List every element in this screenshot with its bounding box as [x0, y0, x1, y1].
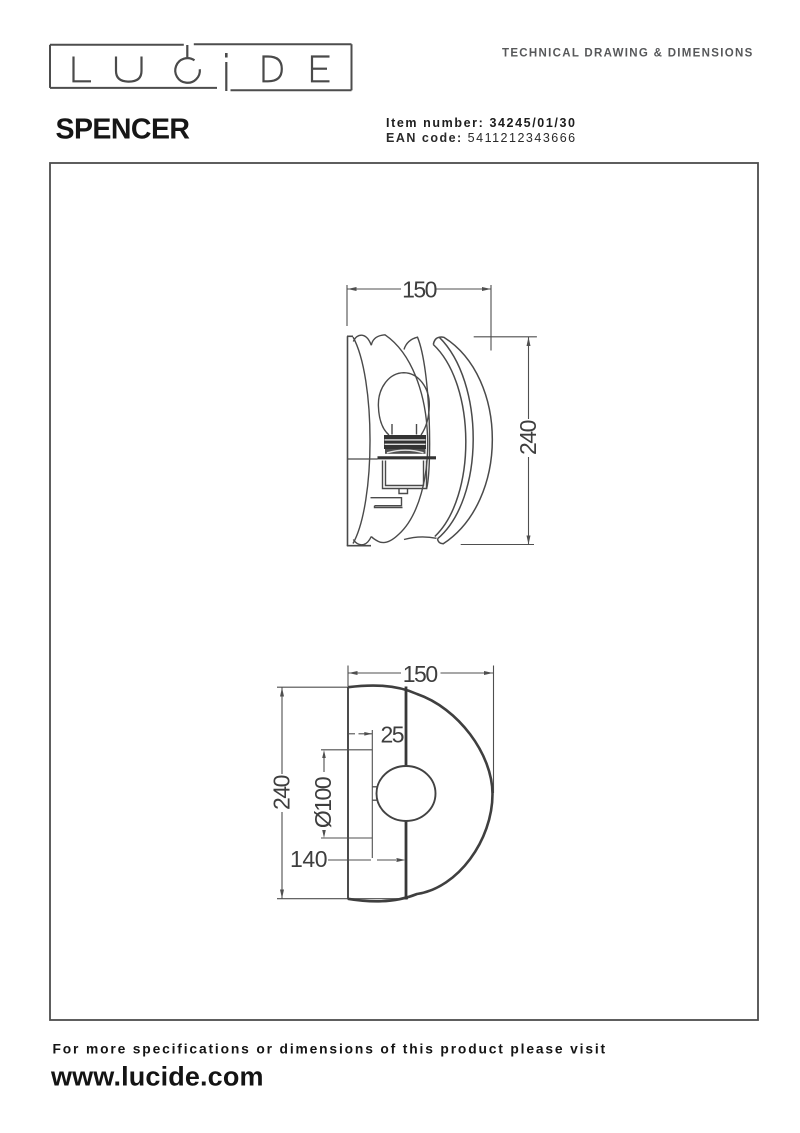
svg-text:240: 240	[515, 420, 541, 455]
svg-text:140: 140	[290, 846, 327, 872]
svg-text:240: 240	[269, 775, 295, 810]
svg-text:Item number: 34245/01/30: Item number: 34245/01/30	[386, 116, 577, 130]
svg-text:TECHNICAL DRAWING & DIMENSIONS: TECHNICAL DRAWING & DIMENSIONS	[502, 48, 754, 60]
svg-text:150: 150	[403, 661, 438, 687]
svg-text:For more specifications or dim: For more specifications or dimensions of…	[53, 1042, 608, 1057]
svg-text:Ø100: Ø100	[310, 777, 336, 828]
svg-text:SPENCER: SPENCER	[56, 114, 190, 146]
svg-text:EAN code: 5411212343666: EAN code: 5411212343666	[386, 131, 577, 145]
svg-text:150: 150	[402, 277, 437, 303]
svg-text:www.lucide.com: www.lucide.com	[50, 1062, 264, 1092]
svg-text:25: 25	[381, 722, 404, 748]
